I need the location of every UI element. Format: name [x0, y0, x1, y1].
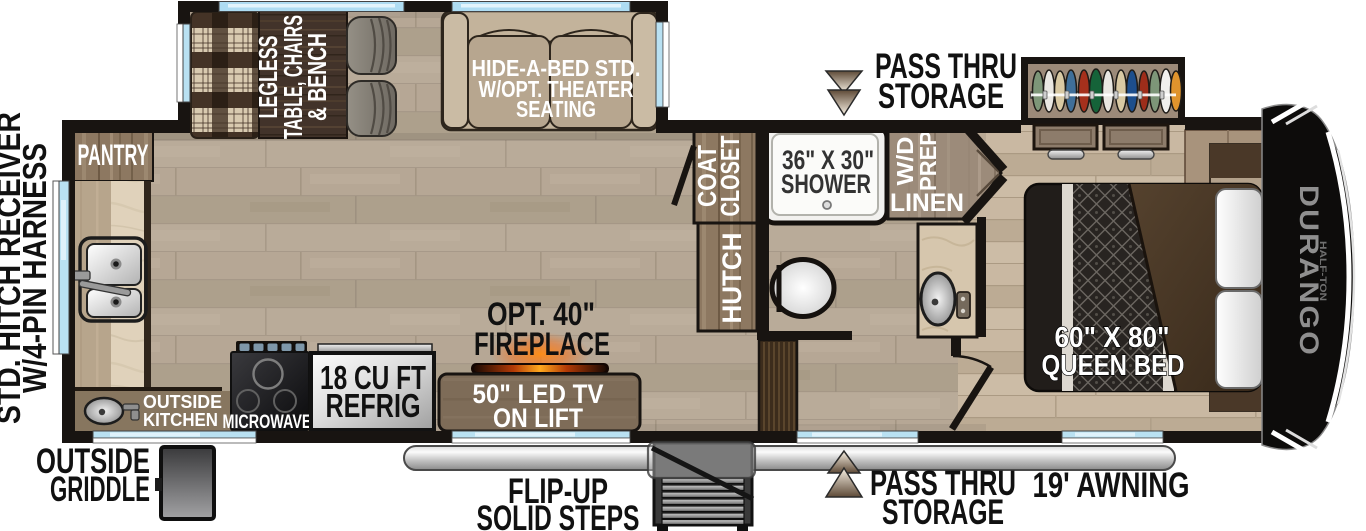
- svg-text:STORAGE: STORAGE: [882, 493, 1004, 531]
- svg-text:REFRIG: REFRIG: [326, 387, 421, 424]
- svg-text:SHOWER: SHOWER: [781, 169, 871, 199]
- svg-text:ON LIFT: ON LIFT: [493, 403, 583, 433]
- svg-text:SEATING: SEATING: [516, 96, 596, 122]
- svg-text:HUTCH: HUTCH: [717, 233, 747, 324]
- svg-text:MICROWAVE: MICROWAVE: [223, 411, 312, 433]
- svg-text:GRIDDLE: GRIDDLE: [50, 470, 150, 509]
- svg-text:PREP: PREP: [915, 131, 941, 191]
- svg-text:FIREPLACE: FIREPLACE: [474, 326, 610, 362]
- svg-text:STORAGE: STORAGE: [878, 77, 1004, 116]
- svg-text:CLOSET: CLOSET: [715, 135, 745, 216]
- svg-text:LINEN: LINEN: [890, 189, 964, 217]
- svg-text:HALF-TON: HALF-TON: [1317, 241, 1328, 301]
- svg-text:& BENCH: & BENCH: [302, 33, 332, 121]
- svg-text:QUEEN BED: QUEEN BED: [1042, 350, 1185, 382]
- svg-text:W/4-PIN HARNESS: W/4-PIN HARNESS: [16, 143, 53, 393]
- svg-text:PANTRY: PANTRY: [78, 139, 149, 172]
- svg-text:KITCHEN: KITCHEN: [143, 409, 218, 430]
- svg-text:19' AWNING: 19' AWNING: [1033, 466, 1190, 505]
- svg-text:SOLID STEPS: SOLID STEPS: [477, 499, 640, 531]
